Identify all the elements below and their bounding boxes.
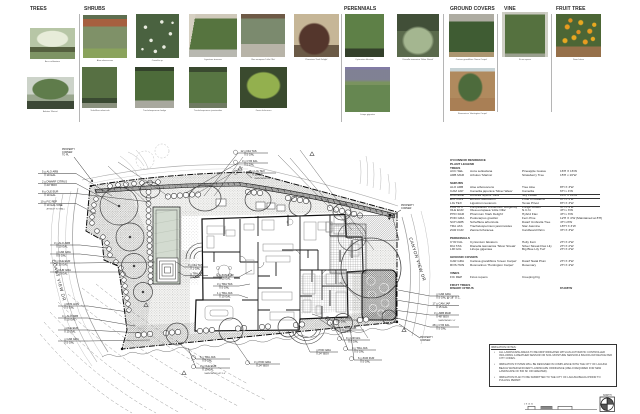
svg-text:24" BOX: 24" BOX: [47, 183, 58, 187]
svg-text:ARB MAR: ARB MAR: [439, 311, 451, 315]
svg-text:15: 15: [249, 169, 252, 173]
svg-text:NORTH: NORTH: [603, 394, 612, 397]
svg-text:5 GAL: 5 GAL: [59, 254, 67, 258]
svg-text:10 GAL: 10 GAL: [47, 173, 57, 177]
svg-text:10 GAL: 10 GAL: [59, 272, 69, 276]
svg-text:DWARF CITRUS: DWARF CITRUS: [47, 180, 68, 184]
svg-text:ALO ARB: ALO ARB: [67, 314, 79, 318]
svg-text:12: 12: [241, 149, 244, 153]
svg-text:ALO ARB: ALO ARB: [47, 170, 59, 174]
svg-text:5 GAL: 5 GAL: [363, 360, 371, 364]
svg-text:ZUR FUR: ZUR FUR: [363, 356, 375, 360]
svg-text:10 GAL: 10 GAL: [205, 368, 215, 372]
svg-text:MAINTAINED AT 8': MAINTAINED AT 8': [255, 177, 274, 180]
svg-text:ALO ARB: ALO ARB: [59, 241, 71, 245]
svg-text:6: 6: [358, 356, 360, 360]
svg-text:3: 3: [242, 159, 244, 163]
svg-text:10 GAL: 10 GAL: [67, 318, 77, 322]
svg-text:5 GAL: 5 GAL: [67, 306, 75, 310]
svg-text:5: 5: [42, 170, 44, 174]
svg-text:10 GAL: 10 GAL: [67, 330, 77, 334]
svg-text:LIR GIG: LIR GIG: [351, 336, 361, 340]
svg-text:48" BOX: 48" BOX: [439, 315, 450, 319]
svg-text:10 GAL: 10 GAL: [222, 295, 232, 299]
svg-text:5 GAL: 5 GAL: [205, 359, 213, 363]
svg-text:DIA TAS: DIA TAS: [247, 149, 257, 153]
svg-text:10 GAL: 10 GAL: [59, 263, 69, 267]
svg-text:3: 3: [254, 360, 256, 364]
svg-text:8: 8: [42, 190, 44, 194]
svg-text:5 GAL: 5 GAL: [339, 320, 347, 324]
svg-text:OLE EUR: OLE EUR: [47, 190, 59, 194]
svg-text:9: 9: [346, 336, 348, 340]
svg-text:CYR FAL: CYR FAL: [439, 323, 451, 327]
svg-text:5 GAL: 5 GAL: [193, 275, 201, 279]
svg-text:POD GRA: POD GRA: [259, 360, 272, 364]
svg-text:15 GAL: 15 GAL: [439, 305, 449, 309]
svg-text:TO PL: TO PL: [62, 154, 70, 157]
svg-text:5 GAL: 5 GAL: [357, 350, 365, 354]
svg-text:OLE EUR: OLE EUR: [67, 326, 79, 330]
svg-text:MAINTAINED 14': MAINTAINED 14': [439, 319, 456, 322]
svg-text:5 GAL: 5 GAL: [67, 341, 75, 345]
svg-text:3: 3: [200, 364, 202, 368]
svg-text:3: 3: [434, 311, 436, 315]
svg-text:CAR GRA: CAR GRA: [67, 337, 79, 341]
svg-text:15 GAL: 15 GAL: [255, 173, 265, 177]
svg-text:FIC REP: FIC REP: [47, 200, 58, 204]
svg-text:OLE EUR: OLE EUR: [59, 259, 71, 263]
svg-text:ATTACH TO WALL: ATTACH TO WALL: [47, 207, 66, 210]
svg-text:CAM JAP: CAM JAP: [439, 302, 451, 306]
svg-text:17: 17: [433, 302, 436, 306]
svg-text:TRA JAS: TRA JAS: [205, 355, 216, 359]
svg-text:TRA JAS: TRA JAS: [357, 346, 368, 350]
svg-text:ZUM FUR: ZUM FUR: [222, 273, 234, 277]
svg-text:CORNER: CORNER: [420, 339, 431, 342]
svg-text:DUR GRA: DUR GRA: [59, 268, 72, 272]
svg-text:5 GAL: 5 GAL: [439, 327, 447, 331]
svg-text:ROS HUN: ROS HUN: [67, 302, 79, 306]
svg-text:5 GAL: 5 GAL: [247, 163, 255, 167]
svg-text:OLE EUR: OLE EUR: [205, 364, 217, 368]
svg-text:0 8 16 32: 0 8 16 32: [524, 404, 534, 406]
svg-text:CYR FAL: CYR FAL: [247, 159, 259, 163]
svg-text:2: 2: [42, 180, 44, 184]
svg-text:24" BOX: 24" BOX: [259, 364, 270, 368]
svg-text:4: 4: [62, 314, 64, 318]
svg-text:CAR GRA: CAR GRA: [59, 250, 71, 254]
svg-text:TRA JAS: TRA JAS: [222, 291, 233, 295]
svg-text:10: 10: [41, 200, 44, 204]
svg-text:5 GAL: 5 GAL: [222, 286, 230, 290]
svg-text:LIG TEX: LIG TEX: [255, 169, 265, 173]
svg-text:1 GAL: 1 GAL: [193, 267, 201, 271]
svg-text:24" BOX: 24" BOX: [319, 352, 330, 356]
svg-text:10 GAL VINE: 10 GAL VINE: [47, 203, 63, 207]
svg-text:5 GAL: 5 GAL: [345, 330, 353, 334]
svg-text:3: 3: [54, 241, 56, 245]
svg-text:MAINTAINED AT 3'-0": MAINTAINED AT 3'-0": [205, 372, 227, 375]
svg-text:PHO DAR: PHO DAR: [339, 316, 351, 320]
svg-text:TRA JAS: TRA JAS: [193, 272, 204, 276]
svg-text:TRA TAS: TRA TAS: [222, 282, 233, 286]
svg-text:DIA TAS: DIA TAS: [193, 263, 203, 267]
svg-text:CORNER: CORNER: [401, 207, 412, 210]
svg-text:5 GAL: 5 GAL: [247, 153, 255, 157]
svg-text:28: 28: [433, 323, 436, 327]
svg-text:POD GRA: POD GRA: [319, 348, 332, 352]
svg-text:10 GAL: 10 GAL: [222, 277, 232, 281]
svg-text:10 GAL: 10 GAL: [59, 245, 69, 249]
svg-text:10 GAL: 10 GAL: [47, 193, 57, 197]
